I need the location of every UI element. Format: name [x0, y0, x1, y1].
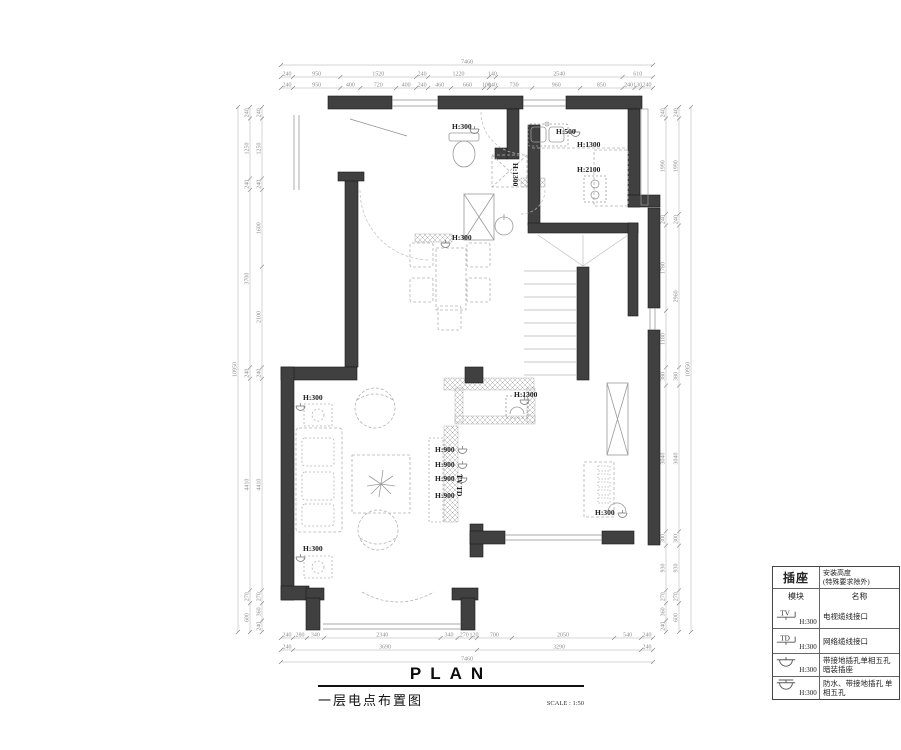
lamp — [312, 409, 324, 421]
dimension-chain: 240125024037002404410270600 — [245, 105, 253, 634]
dimension-label: 1600 — [257, 222, 263, 234]
socket-icon — [296, 554, 305, 562]
legend-module-header: 模块 — [788, 591, 804, 602]
legend-row: TD H:300 网络缆线接口 — [773, 628, 899, 653]
dimension-label: 960 — [552, 83, 561, 89]
dimension-label: 600 — [674, 613, 680, 622]
armchair-back — [357, 394, 393, 400]
wall — [528, 223, 638, 233]
dimension-label: 240 — [257, 108, 263, 117]
dimension-chain: 10950 — [233, 105, 241, 634]
armchair-back — [360, 538, 396, 544]
plan-label: H:900 — [435, 460, 455, 469]
dimension-label: 2540 — [553, 72, 565, 78]
walls-layer — [281, 96, 660, 630]
dimension-label: 380 — [674, 372, 680, 381]
legend-row-name: 网络缆线接口 — [823, 637, 896, 646]
dimension-label: 240 — [661, 108, 667, 117]
dimension-label: 240 — [245, 108, 251, 117]
hatch-areas — [415, 178, 545, 522]
wall — [602, 531, 634, 544]
wall — [566, 96, 642, 109]
dimension-label: 270 — [674, 592, 680, 601]
drawing-sheet: 2409504007204002404606601001407309608502… — [0, 0, 901, 750]
dimension-label: 1220 — [453, 72, 465, 78]
dimension-label: 240 — [245, 369, 251, 378]
plan-label: H:2100 — [577, 165, 601, 174]
dimension-label: 2960 — [674, 290, 680, 302]
dimension-label: 240 — [418, 83, 427, 89]
dimension-label: 1180 — [661, 333, 667, 345]
wall — [306, 598, 320, 630]
waterproof-socket-icon — [775, 679, 797, 697]
drawing-title: 一层电点布置图 — [318, 690, 423, 709]
dimension-label: 400 — [402, 83, 411, 89]
dimension-label: 460 — [435, 83, 444, 89]
dimension-label: 700 — [490, 633, 499, 639]
dimension-chain: 7460 — [279, 657, 655, 665]
dimension-label: 240 — [282, 645, 291, 651]
plan-label: H:300 — [595, 508, 615, 517]
stair-treads — [524, 271, 577, 375]
dimension-label: 360 — [661, 607, 667, 616]
dimension-label: 140 — [488, 83, 497, 89]
dimension-label: 340 — [445, 633, 454, 639]
door-arc-hall — [360, 190, 430, 260]
legend-height-header-2: (特殊要求除外) — [823, 578, 896, 587]
dimension-label: 1520 — [372, 72, 384, 78]
sofa-cushion — [302, 472, 334, 500]
dimension-label: 240 — [643, 645, 652, 651]
dimension-label: 240 — [674, 108, 680, 117]
dimension-label: 7460 — [461, 657, 473, 663]
wall — [328, 96, 392, 109]
legend-height-label: H:300 — [799, 666, 817, 674]
dimension-label: 1990 — [674, 160, 680, 172]
plan-label: H:900 — [435, 474, 455, 483]
wardrobe — [607, 383, 628, 455]
wall — [281, 367, 294, 600]
wall — [628, 223, 638, 316]
counter-east — [594, 150, 628, 206]
dimension-label: 1990 — [661, 160, 667, 172]
network-socket-icon: TD — [775, 631, 797, 651]
legend-height-label: H:300 — [799, 618, 817, 626]
wall — [628, 109, 640, 207]
svg-text:TV: TV — [780, 608, 790, 617]
window-bath-north — [392, 100, 438, 106]
dimension-label: 240 — [418, 72, 427, 78]
legend-row: TV H:300 电视缆线接口 — [773, 604, 899, 628]
stove — [584, 176, 606, 202]
wall — [470, 531, 505, 544]
stairs-layer — [524, 235, 628, 375]
dimension-label: 270 — [661, 592, 667, 601]
dimension-label: 1780 — [661, 262, 667, 274]
wall — [461, 598, 475, 630]
sofa — [296, 428, 342, 532]
plan-label: H:500 — [556, 127, 576, 136]
scale-label: SCALE : 1:50 — [547, 700, 584, 707]
dimension-label: 240 — [661, 622, 667, 631]
dimension-label: 2100 — [257, 311, 263, 323]
hall-cabinet — [492, 155, 527, 187]
wall — [465, 367, 483, 383]
dimension-label: 930 — [674, 563, 680, 572]
dimension-chain: 7460 — [279, 60, 655, 68]
toilet — [449, 133, 479, 167]
dimension-label: 240 — [282, 72, 291, 78]
legend-row-name: 带接地插孔单相五孔 暗装插座 — [823, 656, 896, 674]
dimension-label: 610 — [633, 72, 642, 78]
legend-row: H:300 带接地插孔单相五孔 暗装插座 — [773, 653, 899, 676]
dimension-label: 240 — [643, 83, 652, 89]
wall — [438, 96, 523, 109]
window-study-south — [505, 535, 602, 540]
dimension-chain: 2409504007204002404606601001407309608502… — [279, 83, 655, 91]
shaft — [641, 109, 648, 205]
plan-label: H:300 — [452, 233, 472, 242]
legend-table: 插座 安装高度 (特殊要求除外) 模块 名称 TV H:300 电视缆线接口 T… — [772, 566, 900, 700]
dimension-label: 10950 — [233, 362, 239, 377]
tv-socket-icon: TV — [775, 606, 797, 626]
dining-chair — [410, 278, 433, 302]
plan-label: H:900 — [435, 491, 455, 500]
window-bay — [323, 624, 461, 629]
dimension-label: 240 — [245, 180, 251, 189]
dimension-label: 300 — [674, 534, 680, 543]
wall — [648, 208, 660, 308]
legend-row-name: 防水、带接地插孔 单相五孔 — [823, 679, 896, 697]
sofa-cushion — [302, 504, 334, 526]
title-block: PLAN 一层电点布置图 SCALE : 1:50 — [318, 664, 584, 709]
dimensions-layer: 2409504007204002404606601001407309608502… — [233, 60, 694, 665]
dimension-label: 300 — [661, 534, 667, 543]
legend-height-header-1: 安装高度 — [823, 569, 896, 578]
dimension-label: 850 — [597, 83, 606, 89]
dimension-label: 140 — [488, 72, 497, 78]
legend-name-header: 名称 — [823, 591, 896, 602]
legend-subheader-row: 模块 名称 — [773, 588, 899, 604]
dimension-label: 240 — [643, 633, 652, 639]
dimension-chain: 2401250240160021002404410270360240 — [257, 105, 265, 634]
dimension-label: 130 — [633, 83, 642, 89]
dimension-label: 4410 — [257, 479, 263, 491]
side-table — [304, 556, 332, 578]
wall — [281, 586, 309, 600]
dimension-label: 360 — [257, 607, 263, 616]
dimension-label: 240 — [257, 369, 263, 378]
dimension-chain: 10950 — [686, 105, 694, 634]
floor-plan-canvas: 2409504007204002404606601001407309608502… — [0, 0, 901, 750]
plan-label: H:300 — [303, 544, 323, 553]
dining-chair — [467, 243, 490, 267]
armchair — [355, 388, 395, 428]
wall — [648, 330, 660, 545]
dimension-chain: 24028034023403402701207002050540240 — [279, 633, 655, 641]
plan-label: H:300 — [452, 122, 472, 131]
dimension-label: 240 — [257, 622, 263, 631]
dimension-label: 1250 — [257, 142, 263, 154]
lamp — [312, 561, 324, 573]
dimension-label: 3700 — [245, 273, 251, 285]
dimension-label: 240 — [624, 83, 633, 89]
socket-icon — [775, 656, 797, 674]
dimension-label: 270 — [257, 592, 263, 601]
plan-label: H:1300 — [514, 390, 538, 399]
dimension-label: 3040 — [674, 452, 680, 464]
plan-label: TV TD — [455, 474, 464, 497]
dimension-label: 950 — [312, 72, 321, 78]
dimension-label: 600 — [245, 613, 251, 622]
hatch-alcove-bottom — [455, 416, 535, 424]
dimension-label: 340 — [311, 633, 320, 639]
dimension-label: 400 — [346, 83, 355, 89]
dimension-label: 270 — [460, 633, 469, 639]
sofa-cushion — [302, 438, 334, 466]
dimension-label: 720 — [374, 83, 383, 89]
legend-height-label: H:300 — [799, 689, 817, 697]
dining-chair — [467, 278, 490, 302]
wall — [528, 125, 540, 225]
dimension-label: 270 — [245, 592, 251, 601]
window-entry-north — [523, 100, 566, 106]
legend-row: H:300 防水、带接地插孔 单相五孔 — [773, 676, 899, 699]
dimension-chain: 240199024029603803040300930270600 — [674, 105, 682, 634]
dimension-label: 240 — [282, 83, 291, 89]
plan-label: H:1300 — [577, 140, 601, 149]
dining-chair — [410, 243, 433, 267]
hatch-dining-sill — [415, 234, 452, 242]
fence-west — [294, 115, 299, 190]
side-table — [304, 404, 332, 426]
legend-header-row: 插座 安装高度 (特殊要求除外) — [773, 567, 899, 588]
dimension-label: 730 — [510, 83, 519, 89]
dimension-label: 240 — [282, 633, 291, 639]
dimension-label: 10950 — [686, 362, 692, 377]
socket-icon — [458, 461, 467, 469]
dimension-label: 2340 — [376, 633, 388, 639]
plan-title: PLAN — [318, 664, 584, 687]
plan-label: H:1300 — [511, 163, 520, 187]
dimension-label: 950 — [312, 83, 321, 89]
dimension-label: 280 — [295, 633, 304, 639]
ramp-line — [350, 119, 407, 136]
bath-sink — [495, 214, 513, 235]
socket-icon — [458, 446, 467, 454]
dimension-label: 240 — [257, 180, 263, 189]
dimension-label: 380 — [661, 372, 667, 381]
dimension-label: 240 — [661, 215, 667, 224]
dimension-label: 3290 — [553, 645, 565, 651]
dimension-label: 3690 — [379, 645, 391, 651]
plant — [367, 470, 395, 497]
dimension-chain: 2401990240178011803803040300930270360240 — [661, 105, 669, 634]
plan-label: H:900 — [435, 445, 455, 454]
window-kitchen-east — [650, 308, 655, 330]
wall — [577, 267, 589, 380]
dimension-label: 240 — [674, 215, 680, 224]
dining-table — [436, 248, 466, 310]
bay-decor — [362, 592, 434, 602]
dimension-label: 1250 — [245, 142, 251, 154]
dimension-chain: 240950152024012201402540610 — [279, 72, 655, 80]
stair-landing-cross — [538, 235, 628, 266]
dimension-label: 540 — [623, 633, 632, 639]
legend-height-label: H:300 — [799, 643, 817, 651]
svg-text:TD: TD — [780, 633, 790, 642]
dimension-label: 3040 — [661, 452, 667, 464]
wall — [338, 172, 364, 181]
plan-label: H:300 — [303, 393, 323, 402]
legend-title: 插座 — [783, 569, 809, 586]
wall — [345, 180, 358, 367]
wall — [495, 148, 507, 159]
legend-row-name: 电视缆线接口 — [823, 612, 896, 621]
dimension-label: 4410 — [245, 479, 251, 491]
dimension-label: 2050 — [557, 633, 569, 639]
dimension-label: 7460 — [461, 60, 473, 66]
dimension-label: 930 — [661, 563, 667, 572]
armchair — [358, 510, 398, 550]
dimension-label: 660 — [463, 83, 472, 89]
dimension-chain: 24036903290240 — [279, 645, 655, 653]
